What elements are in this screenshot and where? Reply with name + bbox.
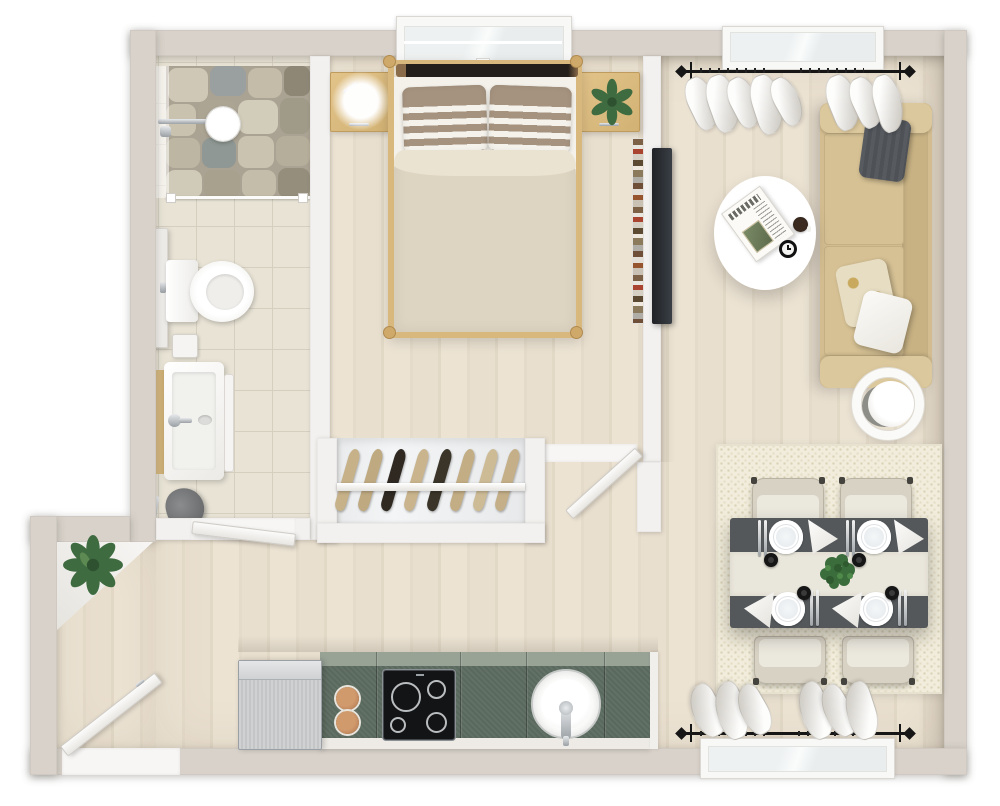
rod-finial [675, 727, 688, 740]
rod-end-stop [899, 62, 901, 80]
rod-finial [675, 65, 688, 78]
rod-finial [903, 727, 916, 740]
rod-end-stop [690, 724, 692, 742]
rod-finial [903, 65, 916, 78]
curtain-rings [700, 68, 772, 73]
curtain-rings [800, 68, 864, 73]
rod-end-stop [899, 724, 901, 742]
curtains [0, 0, 1000, 806]
floor-plan-canvas [0, 0, 1000, 806]
